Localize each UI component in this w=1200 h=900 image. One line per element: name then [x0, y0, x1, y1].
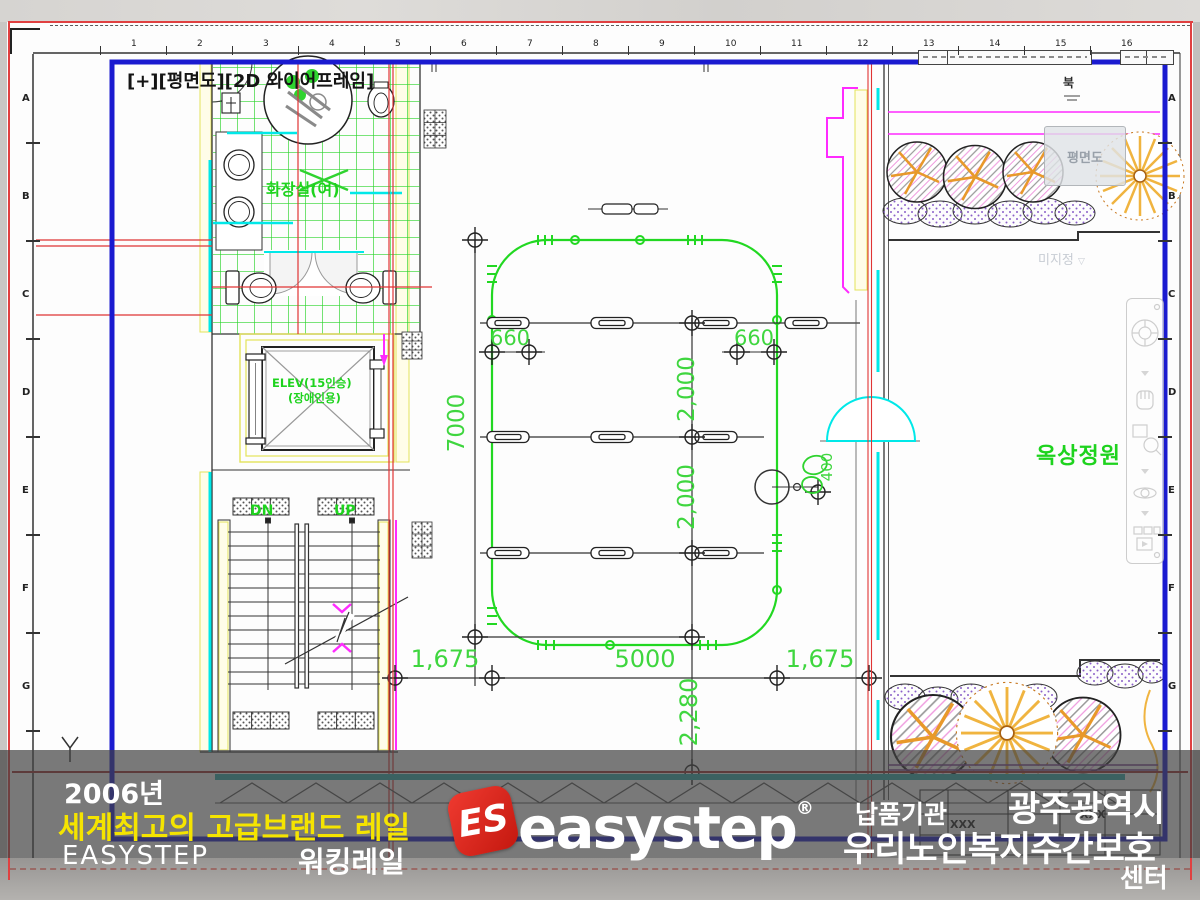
ruler-tick: [166, 46, 167, 55]
logo-monogram: ES: [455, 796, 512, 845]
ruler-letter-right: F: [1168, 583, 1175, 594]
dim-7000: 7000: [444, 394, 470, 453]
unassigned-text: 미지정: [1038, 253, 1074, 268]
ruler-tick: [100, 46, 101, 55]
ruler-tick: [232, 46, 233, 55]
ruler-number: 9: [659, 39, 665, 49]
ruler-tick: [1158, 632, 1172, 634]
dim-2280: 2,280: [675, 678, 703, 747]
ruler-tick: [1090, 46, 1091, 55]
unassigned-label: 미지정 ▽: [1038, 249, 1085, 268]
ruler-number: 3: [263, 39, 269, 49]
chevron-down-icon: [1141, 469, 1149, 474]
ruler-tick: [26, 730, 40, 732]
ruler-tick: [496, 46, 497, 55]
ruler-tick: [298, 46, 299, 55]
ruler-tick: [26, 436, 40, 438]
ruler-tick: [26, 240, 40, 242]
ruler-number: 2: [197, 39, 203, 49]
ruler-number: 16: [1121, 39, 1132, 49]
pan-hand-icon: [1137, 391, 1153, 409]
promo-product: 워킹레일: [298, 839, 405, 881]
ruler-tick: [1158, 338, 1172, 340]
strip-text-squiggle: [923, 56, 1087, 58]
walking-rail-loop: [382, 204, 882, 785]
ruler-letter-right: C: [1168, 289, 1175, 300]
dim-1675-left: 1,675: [411, 645, 480, 673]
ruler-tick: [1158, 730, 1172, 732]
chevron-down-icon: [1141, 371, 1149, 376]
ruler-tick: [26, 534, 40, 536]
client-name-tail: 센터: [1120, 858, 1168, 895]
ruler-letter-left: F: [22, 583, 29, 594]
ruler-tick: [1158, 436, 1172, 438]
ruler-letter-left: C: [22, 289, 29, 300]
sheet-header-strip-right: [1120, 50, 1174, 65]
ruler-tick: [364, 46, 365, 55]
ruler-number: 4: [329, 39, 335, 49]
ruler-letter-left: E: [22, 485, 29, 496]
orbit-icon: [1134, 488, 1156, 498]
ruler-number: 8: [593, 39, 599, 49]
promo-brand: EASYSTEP: [62, 841, 209, 871]
viewport-controls[interactable]: [+][평면도][2D 와이어프레임]: [127, 67, 374, 93]
ruler-tick: [1158, 240, 1172, 242]
strip-text-squiggle: [1125, 56, 1169, 58]
dim-2000-lower: 2,000: [674, 464, 700, 530]
ruler-letter-right: D: [1168, 387, 1176, 398]
dim-2000-upper: 2,000: [674, 356, 700, 422]
ruler-number: 7: [527, 39, 533, 49]
easystep-wordmark: easystep®: [518, 794, 812, 862]
ruler-number: 1: [131, 39, 137, 49]
dim-400: 400: [818, 453, 836, 482]
ruler-tick: [1158, 142, 1172, 144]
elevator-label-line1: ELEV(15인승): [272, 375, 352, 391]
ruler-tick: [826, 46, 827, 55]
view-tooltip-label: 평면도: [1067, 147, 1103, 166]
registered-mark: ®: [796, 798, 812, 819]
ruler-letter-left: A: [22, 93, 30, 104]
staircase: [218, 498, 432, 752]
stair-up-label: UP: [334, 503, 356, 519]
showmotion-icon: [1134, 527, 1160, 550]
ruler-tick: [892, 46, 893, 55]
ruler-tick: [1024, 46, 1025, 55]
ruler-letter-right: E: [1168, 485, 1175, 496]
ruler-number: 13: [923, 39, 934, 49]
chevron-down-icon: [1141, 511, 1149, 516]
sheet-header-strip: [918, 50, 1092, 65]
ruler-tick: [26, 142, 40, 144]
centerlines-red: [36, 62, 872, 858]
ruler-number: 15: [1055, 39, 1066, 49]
ruler-tick: [1158, 534, 1172, 536]
ruler-tick: [26, 632, 40, 634]
ruler-tick: [430, 46, 431, 55]
ruler-letter-right: G: [1168, 681, 1176, 692]
ruler-number: 10: [725, 39, 736, 49]
stair-down-label: DN: [250, 503, 273, 519]
client-name: 우리노인복지주간보호: [843, 821, 1155, 872]
north-label: 북: [1063, 74, 1074, 91]
dim-5000: 5000: [614, 645, 675, 673]
ruler-tick: [562, 46, 563, 55]
ruler-tick: [694, 46, 695, 55]
zoom-icon: [1133, 425, 1161, 455]
ruler-number: 12: [857, 39, 868, 49]
ruler-letter-left: D: [22, 387, 30, 398]
ruler-letter-left: G: [22, 681, 30, 692]
dim-1675-right: 1,675: [786, 645, 855, 673]
ruler-letter-left: B: [22, 191, 30, 202]
wordmark-text: easystep: [518, 794, 796, 862]
ruler-number: 5: [395, 39, 401, 49]
navbar-menu-icon: [1155, 553, 1160, 558]
elevator-label-line2: (장애인용): [288, 390, 341, 406]
ruler-tick: [26, 338, 40, 340]
ruler-letter-right: A: [1168, 93, 1176, 104]
ruler-tick: [628, 46, 629, 55]
view-tooltip: 평면도: [1044, 126, 1126, 186]
roof-garden-label: 옥상정원: [1036, 438, 1121, 470]
ruler-number: 11: [791, 39, 802, 49]
ruler-number: 6: [461, 39, 467, 49]
restroom-label: 화장실(여): [266, 176, 340, 200]
navigation-wheel-icon: [1132, 320, 1158, 346]
ruler-tick: [760, 46, 761, 55]
slide: [+][평면도][2D 와이어프레임] 북 화장실(여) ELEV(15인승) …: [0, 0, 1200, 900]
dim-660-left: 660: [490, 326, 530, 350]
dim-660-right: 660: [734, 326, 774, 350]
ruler-letter-right: B: [1168, 191, 1176, 202]
ruler-number: 14: [989, 39, 1000, 49]
ruler-tick: [958, 46, 959, 55]
navbar-close-icon: [1155, 305, 1160, 310]
chevron-down-icon: ▽: [1078, 257, 1085, 267]
